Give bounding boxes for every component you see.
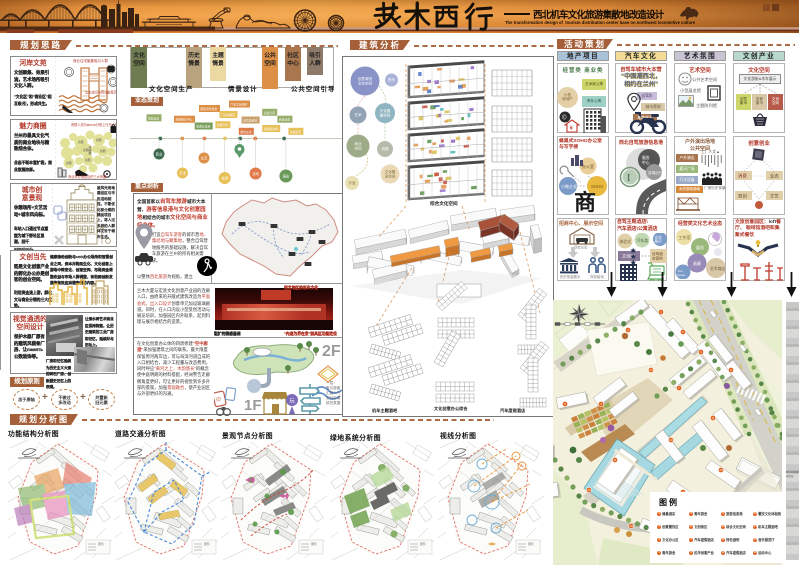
svg-text:展示: 展示 [655,239,663,244]
svg-text:双创: 双创 [738,193,747,200]
svg-text:SOHO: SOHO [591,184,604,189]
svg-text:工作室: 工作室 [679,234,691,240]
svg-text:综合文化空间: 综合文化空间 [430,200,458,207]
svg-text:house: house [677,273,686,277]
svg-text:玩: 玩 [290,399,295,405]
svg-text:自驾酒: 自驾酒 [652,251,663,256]
svg-text:中心: 中心 [642,160,650,165]
svg-text:艺术商店: 艺术商店 [710,266,725,271]
svg-text:汇聚人气: 汇聚人气 [326,390,341,395]
svg-text:演绎空间: 演绎空间 [217,123,228,127]
svg-text:艺术: 艺术 [354,112,362,117]
svg-text:汽车度假酒店: 汽车度假酒店 [500,407,526,414]
svg-text:1F: 1F [244,397,262,414]
svg-text:展览: 展览 [696,244,704,250]
svg-text:体验式: 体验式 [620,239,632,244]
svg-text:机车主题酒吧: 机车主题酒吧 [372,407,398,414]
svg-text:店营地: 店营地 [652,256,663,261]
svg-text:¥: ¥ [570,126,574,132]
svg-text:11: 11 [613,458,616,462]
svg-text:图例: 图例 [311,542,317,546]
svg-text:图例: 图例 [98,542,104,546]
svg-text:图例: 图例 [528,542,534,546]
svg-text:商业住宅聚集吸引人群: 商业住宅聚集吸引人群 [73,58,108,63]
svg-text:2F: 2F [322,343,341,360]
svg-text:商圈: 商圈 [96,138,102,142]
svg-text:观复投资地: 观复投资地 [264,127,278,131]
svg-text:I: I [627,173,630,184]
svg-text:活动: 活动 [252,171,259,176]
svg-text:演出: 演出 [283,173,290,178]
svg-text:创意业态: 创意业态 [148,116,159,120]
svg-text:文化空间与商业聚集艺术人群: 文化空间与商业聚集艺术人群 [85,90,116,95]
svg-text:览空间: 览空间 [385,174,396,179]
svg-text:国际青年旅舍: 国际青年旅舍 [201,107,218,111]
svg-text:文艺: 文艺 [201,155,208,160]
svg-text:张掖路: 张掖路 [88,145,92,156]
svg-text:创意潮流: 创意潮流 [358,76,373,81]
svg-text:文艺: 文艺 [770,193,779,200]
svg-text:业态: 业态 [770,173,779,179]
svg-text:消费陶艺中心: 消费陶艺中心 [176,118,193,122]
svg-text:画廊: 画廊 [693,260,701,266]
svg-text:15: 15 [719,468,723,472]
svg-text:划分区域: 划分区域 [326,395,341,400]
svg-text:图例: 图例 [420,542,426,546]
svg-text:空间: 空间 [354,146,362,151]
svg-text:商业业态: 商业业态 [279,118,290,122]
svg-text:商业事业相结合的三大商圈: 商业事业相结合的三大商圈 [68,174,106,179]
svg-text:文娱演艺: 文娱演艺 [290,130,301,134]
svg-text:商圈: 商圈 [100,149,106,153]
svg-text:一层：: 一层： [326,380,337,385]
svg-text:10: 10 [669,438,673,442]
svg-text:小微企业: 小微企业 [561,183,577,189]
svg-text:餐饮业态: 餐饮业态 [240,130,251,134]
svg-text:汽车文化相关: 汽车文化相关 [231,103,248,107]
svg-text:商圈: 商圈 [66,161,72,165]
svg-text:音乐: 音乐 [388,77,396,82]
svg-text:商业: 商业 [156,151,163,156]
svg-text:图例: 图例 [204,542,210,546]
svg-text:文化展: 文化展 [380,108,391,113]
svg-text:自驾出行: 自驾出行 [648,170,663,175]
svg-text:消费: 消费 [738,173,747,180]
svg-text:办公室: 办公室 [582,163,594,169]
svg-text:商: 商 [574,190,596,214]
svg-text:沙龙: 沙龙 [348,180,356,185]
svg-text:消费: 消费 [381,146,389,151]
svg-text:文化空间: 文化空间 [358,81,373,86]
svg-text:文化展: 文化展 [385,169,396,174]
svg-text:13: 13 [629,524,633,528]
svg-text:烘托氛围: 烘托氛围 [326,400,341,405]
svg-text:商圈: 商圈 [78,140,84,144]
svg-text:16: 16 [649,368,653,372]
svg-text:12: 12 [587,488,591,492]
svg-text:门头沟酒店: 门头沟酒店 [221,113,235,117]
svg-text:艺术: 艺术 [179,170,186,175]
svg-text:休闲: 休闲 [221,175,228,180]
svg-text:输空间: 输空间 [380,113,391,118]
svg-text:服务: 服务 [642,155,650,160]
svg-text:文化创意办公综合: 文化创意办公综合 [434,405,468,412]
svg-text:商圈: 商圈 [85,158,91,162]
svg-text:有很人流与места分别上行汽大街: 有很人流与места分别上行汽大街 [71,122,116,127]
svg-text:旅游信息港: 旅游信息港 [196,125,210,129]
svg-text:吸引游客: 吸引游客 [326,385,341,390]
svg-text:汽车游: 汽车游 [637,238,649,243]
svg-text:自驾投资地: 自驾投资地 [243,119,257,123]
svg-text:演出空间: 演出空间 [264,111,275,115]
svg-text:商业: 商业 [354,141,362,146]
